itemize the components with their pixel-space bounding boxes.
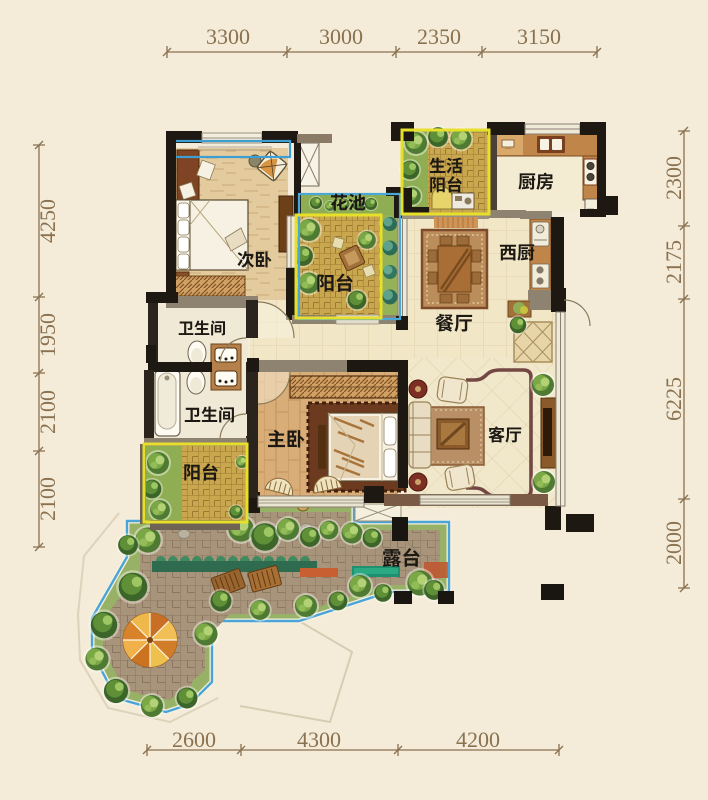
svg-text:6225: 6225 (661, 377, 686, 421)
svg-text:4200: 4200 (456, 727, 500, 752)
svg-text:4300: 4300 (297, 727, 341, 752)
svg-text:3000: 3000 (319, 24, 363, 49)
svg-text:2100: 2100 (35, 477, 60, 521)
svg-text:1950: 1950 (35, 313, 60, 357)
svg-text:3300: 3300 (206, 24, 250, 49)
svg-text:2000: 2000 (661, 521, 686, 565)
svg-text:2300: 2300 (661, 156, 686, 200)
svg-text:2175: 2175 (661, 240, 686, 284)
svg-text:4250: 4250 (35, 199, 60, 243)
svg-text:2100: 2100 (35, 390, 60, 434)
svg-text:3150: 3150 (517, 24, 561, 49)
svg-text:2350: 2350 (417, 24, 461, 49)
svg-text:2600: 2600 (172, 727, 216, 752)
